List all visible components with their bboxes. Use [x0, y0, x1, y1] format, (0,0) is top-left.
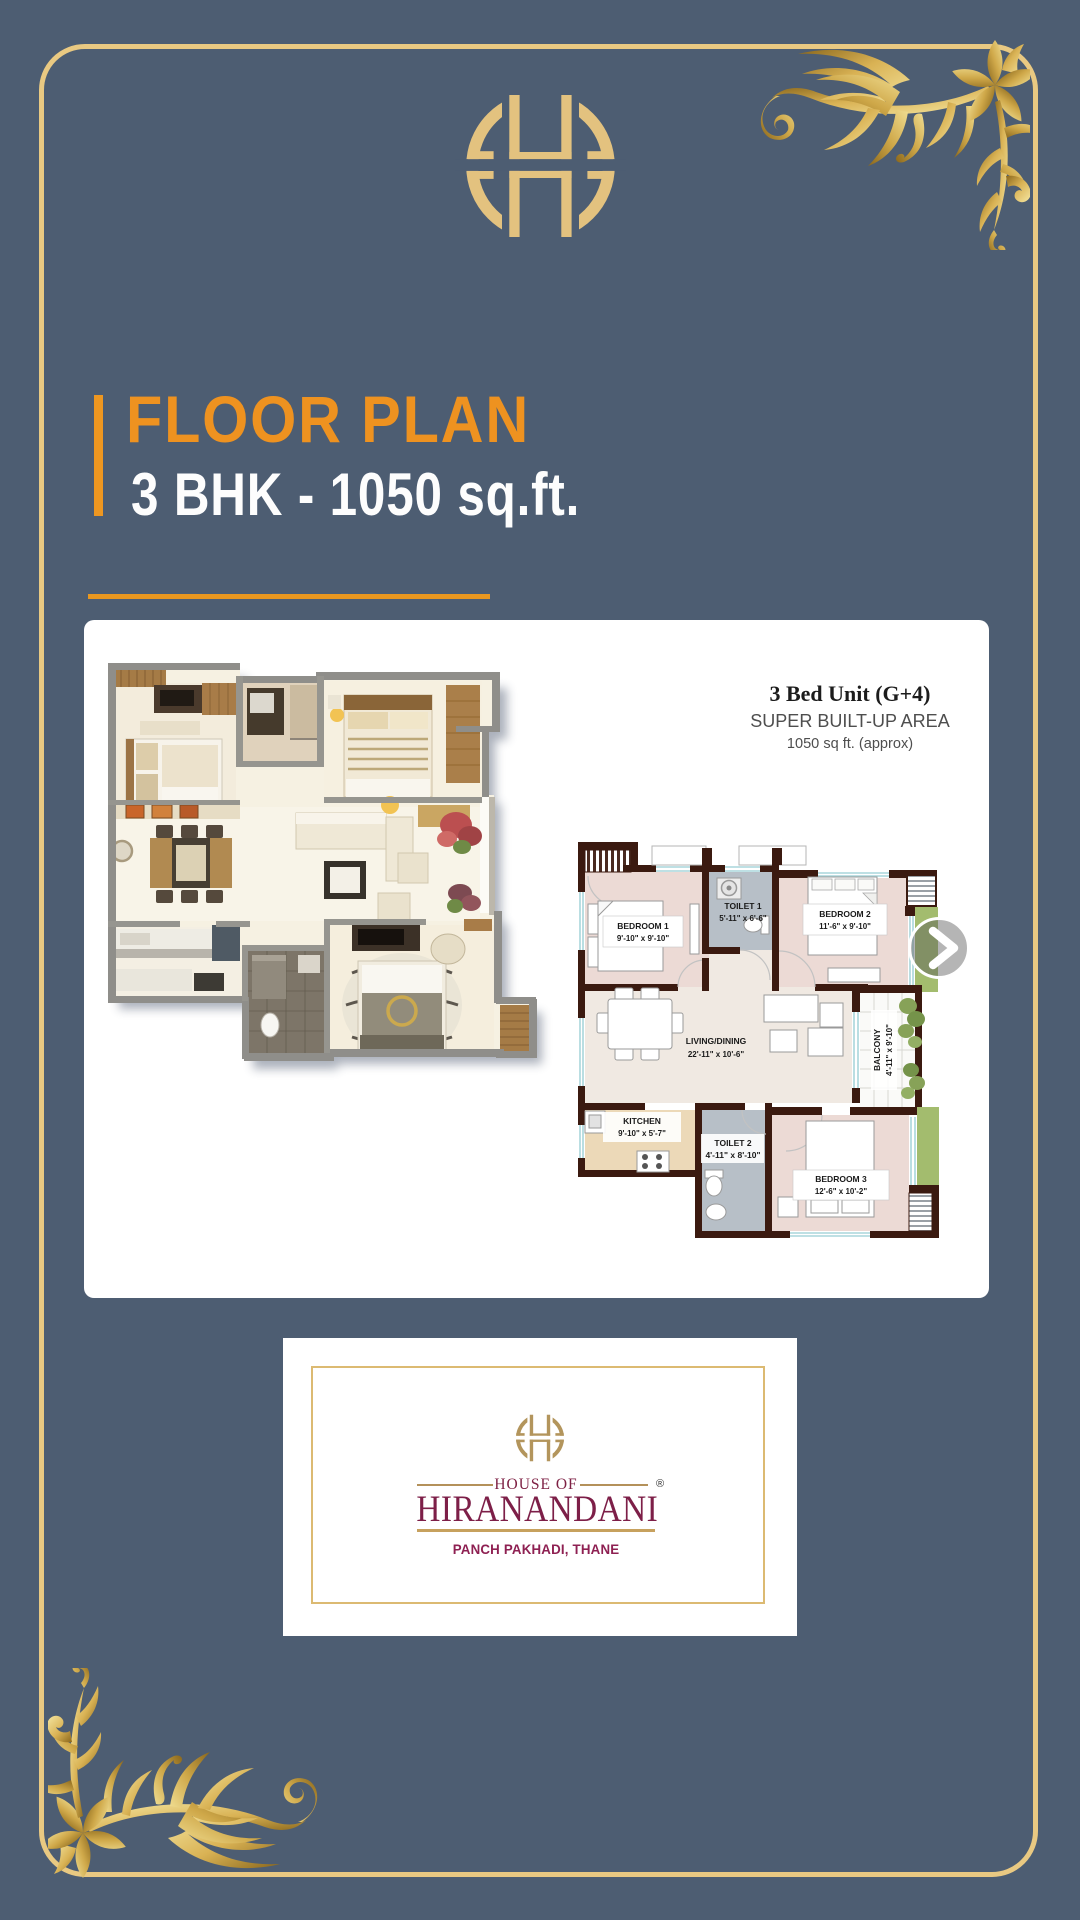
svg-text:BEDROOM 1: BEDROOM 1 — [617, 921, 669, 931]
svg-text:4'-11" x 8'-10": 4'-11" x 8'-10" — [705, 1150, 760, 1160]
svg-text:9'-10" x 9'-10": 9'-10" x 9'-10" — [617, 934, 670, 943]
svg-text:22'-11" x 10'-6": 22'-11" x 10'-6" — [688, 1050, 745, 1059]
svg-text:TOILET 2: TOILET 2 — [714, 1138, 751, 1148]
svg-text:LIVING/DINING: LIVING/DINING — [686, 1036, 747, 1046]
svg-text:BEDROOM 2: BEDROOM 2 — [819, 909, 871, 919]
svg-text:5'-11" x 6'-6": 5'-11" x 6'-6" — [719, 914, 767, 923]
svg-text:11'-6" x 9'-10": 11'-6" x 9'-10" — [819, 922, 871, 931]
svg-text:BALCONY: BALCONY — [872, 1029, 882, 1071]
svg-text:BEDROOM 3: BEDROOM 3 — [815, 1174, 867, 1184]
svg-text:9'-10" x 5'-7": 9'-10" x 5'-7" — [618, 1129, 666, 1138]
svg-text:KITCHEN: KITCHEN — [623, 1116, 661, 1126]
svg-text:12'-6" x 10'-2": 12'-6" x 10'-2" — [815, 1187, 868, 1196]
svg-text:4'-11" x 9'-10": 4'-11" x 9'-10" — [885, 1024, 894, 1076]
svg-text:TOILET 1: TOILET 1 — [724, 901, 761, 911]
